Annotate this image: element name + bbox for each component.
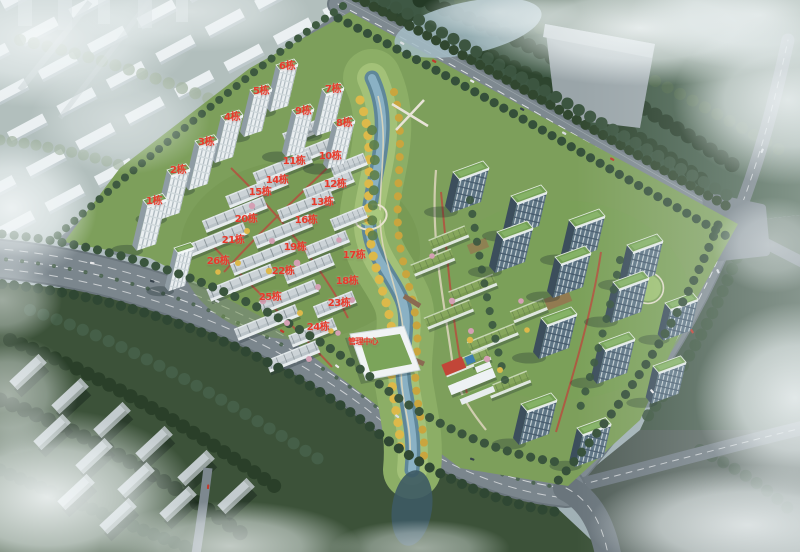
scene-canvas xyxy=(0,0,800,552)
aerial-render: 1栋2栋3栋4栋5栋6栋7栋8栋9栋10栋11栋12栋13栋14栋15栋16栋1… xyxy=(0,0,800,552)
cloud-overlay xyxy=(0,0,800,552)
